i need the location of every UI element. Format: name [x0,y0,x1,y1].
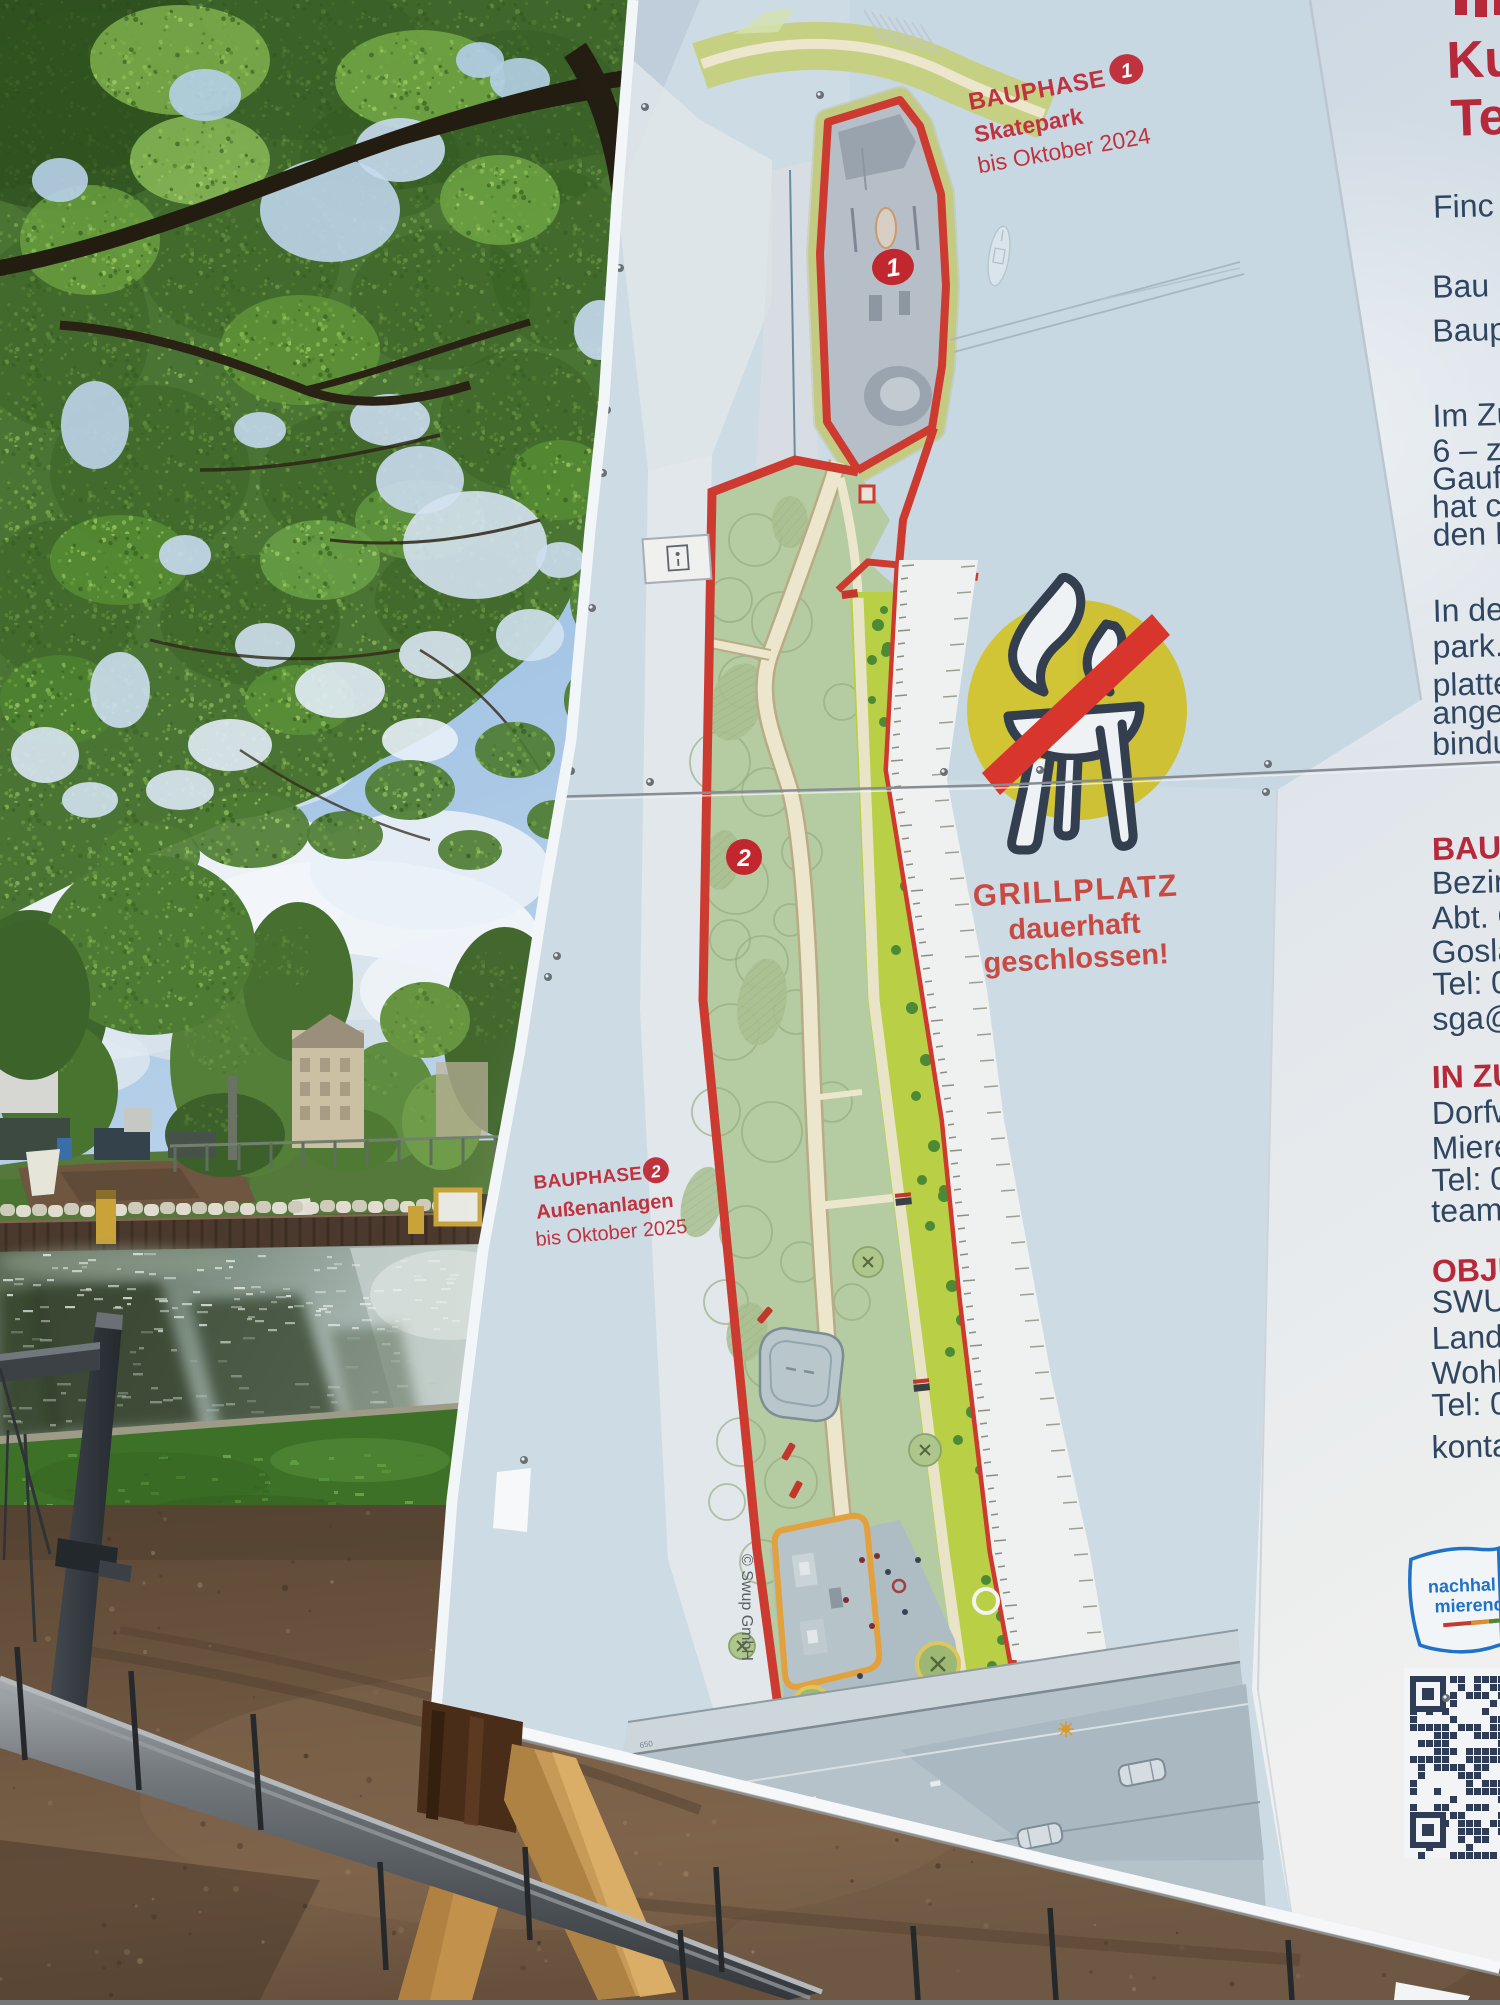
svg-text:Dorfwe: Dorfwe [1431,1092,1500,1131]
svg-text:Abt. O: Abt. O [1431,898,1500,936]
svg-text:Baup: Baup [1432,311,1500,349]
svg-text:park.: park. [1432,627,1500,665]
svg-text:bindu: bindu [1432,724,1500,762]
svg-text:nachhal: nachhal [1428,1574,1497,1596]
svg-text:kontak: kontak [1431,1427,1500,1465]
svg-text:Tel: 03: Tel: 03 [1431,1385,1500,1423]
svg-text:Im Zu: Im Zu [1432,396,1500,434]
svg-text:SWUP: SWUP [1431,1282,1500,1321]
svg-text:Tel: 03: Tel: 03 [1432,964,1500,1002]
svg-text:BAUHER: BAUHER [1431,827,1500,867]
svg-text:© Swup GmbH: © Swup GmbH [738,1554,755,1661]
svg-text:Bezirks: Bezirks [1431,862,1500,901]
svg-text:den L: den L [1432,515,1500,553]
svg-text:IN ZUS: IN ZUS [1431,1056,1500,1095]
svg-text:Landsc: Landsc [1431,1317,1500,1356]
svg-text:In der: In der [1432,591,1500,629]
svg-text:Ku: Ku [1446,30,1500,90]
svg-text:2: 2 [736,845,751,872]
svg-text:Te: Te [1450,88,1500,148]
svg-text:sga@c: sga@c [1432,998,1500,1037]
svg-text:Finc: Finc [1433,187,1494,225]
svg-text:Bau: Bau [1432,267,1490,304]
svg-text:team@: team@ [1431,1190,1500,1229]
svg-text:mierend: mierend [1434,1594,1500,1616]
